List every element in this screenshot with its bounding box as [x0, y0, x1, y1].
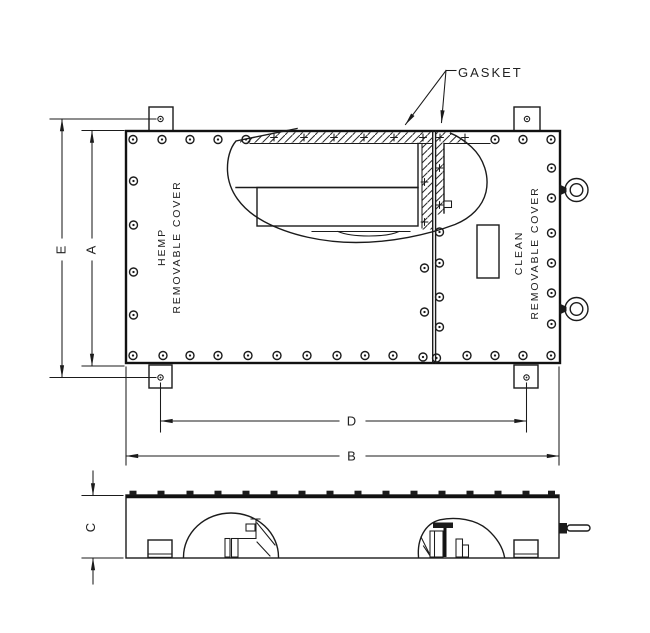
clean-cover-label-line1: CLEAN [513, 231, 525, 276]
dim-e-label: E [53, 245, 68, 255]
dimension-a: A [82, 131, 124, 367]
side-connectors [560, 179, 589, 321]
side-stud [559, 523, 590, 534]
dimension-b: B [126, 367, 559, 465]
hemp-cover-label-line2: REMOVABLE COVER [171, 180, 183, 313]
drawing-canvas: HEMP REMOVABLE COVER CLEAN REMOVABLE COV… [0, 0, 650, 633]
front-view: HEMP REMOVABLE COVER CLEAN REMOVABLE COV… [50, 65, 588, 465]
nameplate [477, 225, 499, 278]
dimension-d: D [161, 383, 527, 432]
dim-c-label: C [83, 522, 98, 532]
dim-a-label: A [83, 245, 98, 255]
dimension-c: C [82, 471, 123, 584]
side-view: C [82, 471, 590, 584]
clean-cover-label-line2: REMOVABLE COVER [529, 186, 541, 319]
technical-drawing-sheet: HEMP REMOVABLE COVER CLEAN REMOVABLE COV… [0, 0, 650, 633]
hemp-cover-label-line1: HEMP [156, 228, 168, 266]
dim-d-label: D [347, 414, 357, 429]
gasket-callout-text: GASKET [458, 65, 523, 80]
dim-b-label: B [347, 449, 357, 464]
gasket-callout: GASKET [406, 65, 523, 125]
